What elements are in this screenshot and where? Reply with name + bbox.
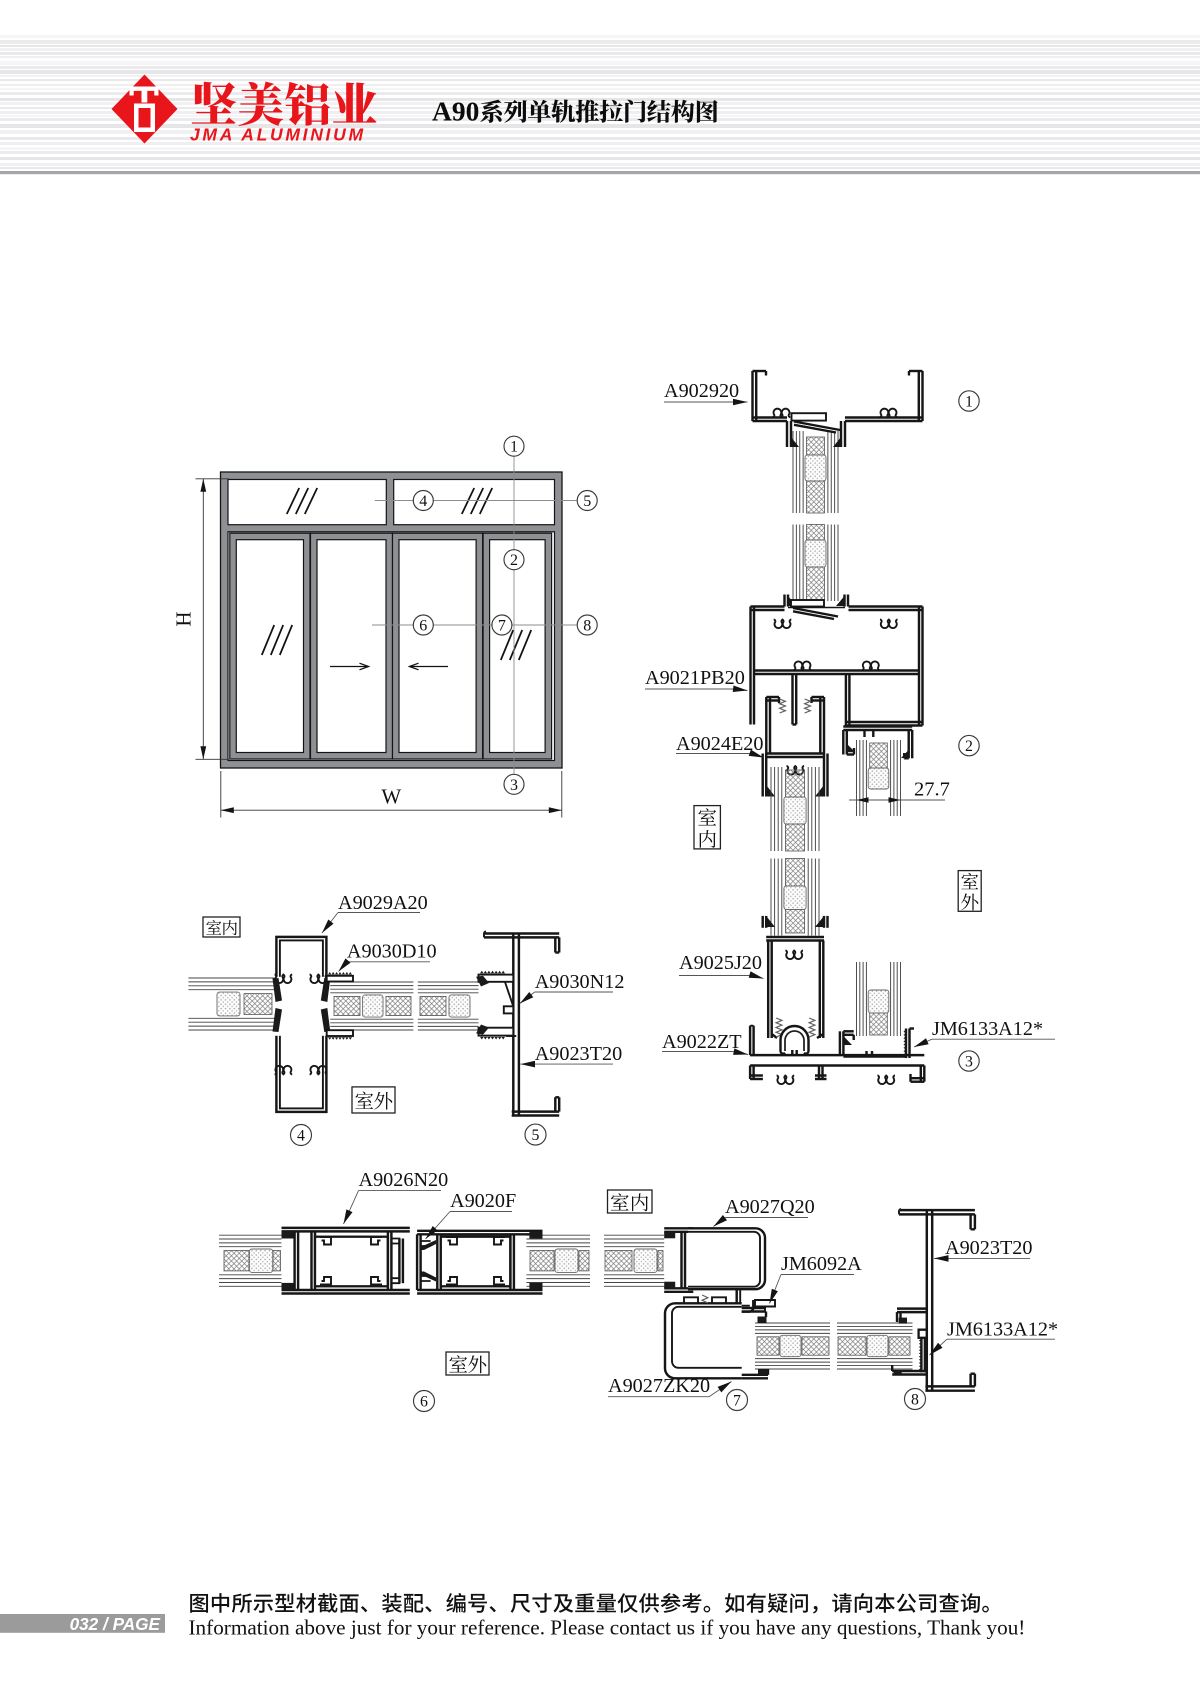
svg-text:8: 8 [583, 618, 591, 635]
svg-text:A9027Q20: A9027Q20 [725, 1196, 815, 1218]
svg-text:A9021PB20: A9021PB20 [645, 667, 745, 689]
svg-text:A902920: A902920 [664, 380, 739, 402]
svg-text:A9027ZK20: A9027ZK20 [608, 1375, 710, 1397]
svg-text:4: 4 [419, 493, 427, 510]
svg-text:1: 1 [510, 439, 518, 456]
svg-text:4: 4 [297, 1127, 305, 1144]
svg-text:3: 3 [965, 1053, 973, 1070]
svg-text:27.7: 27.7 [914, 779, 950, 801]
svg-text:A9029A20: A9029A20 [338, 892, 428, 914]
svg-text:JMA ALUMINIUM: JMA ALUMINIUM [190, 125, 366, 145]
svg-text:H: H [172, 611, 196, 626]
svg-text:Information above just for you: Information above just for your referenc… [189, 1616, 1026, 1640]
svg-text:8: 8 [911, 1391, 919, 1408]
svg-text:A9023T20: A9023T20 [945, 1237, 1032, 1259]
svg-text:A9020F: A9020F [450, 1190, 516, 1212]
svg-text:032 / PAGE: 032 / PAGE [70, 1614, 161, 1634]
svg-text:JM6092A: JM6092A [781, 1253, 862, 1275]
svg-text:5: 5 [532, 1127, 540, 1144]
svg-text:A9030N12: A9030N12 [535, 971, 625, 993]
svg-text:A9022ZT: A9022ZT [662, 1031, 742, 1053]
svg-text:6: 6 [420, 1393, 428, 1410]
svg-text:W: W [381, 785, 401, 809]
svg-text:A90: A90 [432, 96, 479, 127]
svg-text:7: 7 [498, 618, 506, 635]
svg-text:7: 7 [733, 1392, 741, 1409]
svg-text:JM6133A12*: JM6133A12* [932, 1018, 1043, 1040]
svg-text:3: 3 [510, 777, 518, 794]
svg-text:A9023T20: A9023T20 [535, 1043, 622, 1065]
svg-text:6: 6 [419, 618, 427, 635]
svg-text:2: 2 [965, 738, 973, 755]
svg-text:A9026N20: A9026N20 [359, 1169, 449, 1191]
svg-text:1: 1 [965, 393, 973, 410]
svg-text:2: 2 [510, 552, 518, 569]
svg-text:5: 5 [583, 493, 591, 510]
svg-text:A9030D10: A9030D10 [347, 941, 437, 963]
svg-text:A9025J20: A9025J20 [679, 952, 762, 974]
svg-text:JM6133A12*: JM6133A12* [947, 1319, 1058, 1341]
